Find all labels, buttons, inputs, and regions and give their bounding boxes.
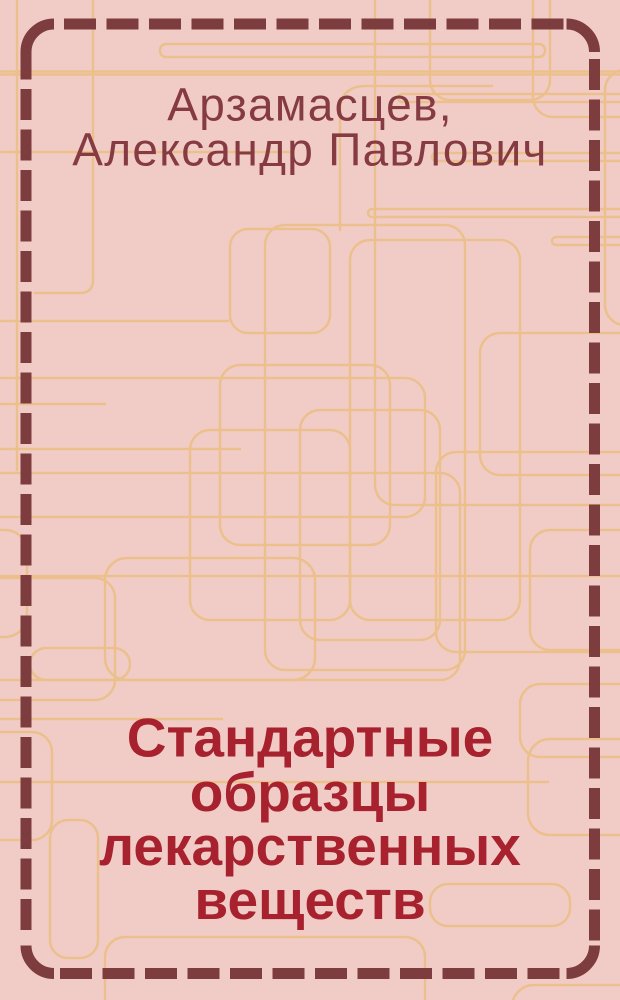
svg-text:Стандартные: Стандартные	[127, 707, 494, 769]
svg-text:образцы: образцы	[190, 761, 431, 823]
svg-text:веществ: веществ	[194, 869, 425, 931]
svg-text:Александр Павлович: Александр Павлович	[72, 124, 547, 176]
svg-text:лекарственных: лекарственных	[99, 815, 521, 877]
